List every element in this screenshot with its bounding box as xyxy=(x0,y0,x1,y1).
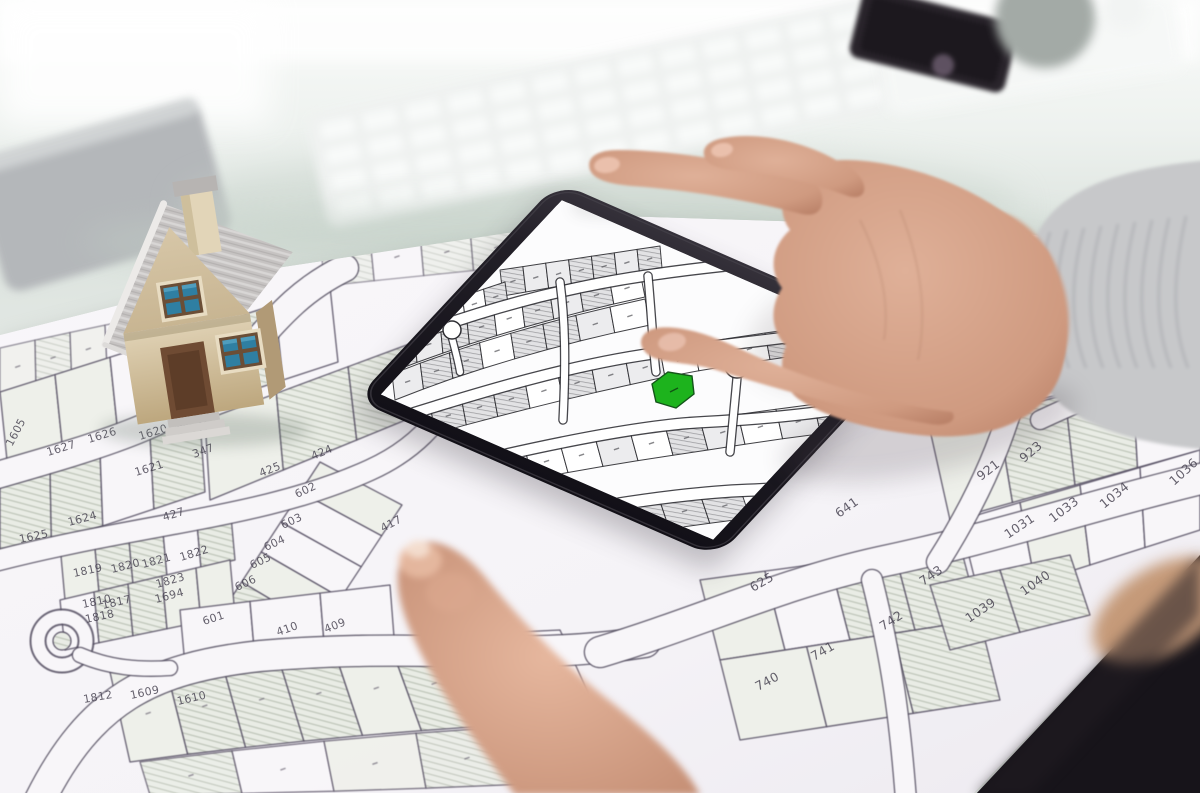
culdesac-island xyxy=(53,632,71,650)
left-hand-knuckle xyxy=(426,572,474,612)
paper-parcel xyxy=(232,741,334,793)
house-main-window xyxy=(215,328,267,375)
house-attic-window xyxy=(156,276,208,323)
left-fingertip-highlight xyxy=(406,540,430,558)
window-light xyxy=(0,0,270,125)
scene-svg: 1605162716261620347162142542460242716241… xyxy=(0,0,1200,793)
photo-stage: 1605162716261620347162142542460242716241… xyxy=(0,0,1200,793)
paper-parcel xyxy=(324,733,426,791)
